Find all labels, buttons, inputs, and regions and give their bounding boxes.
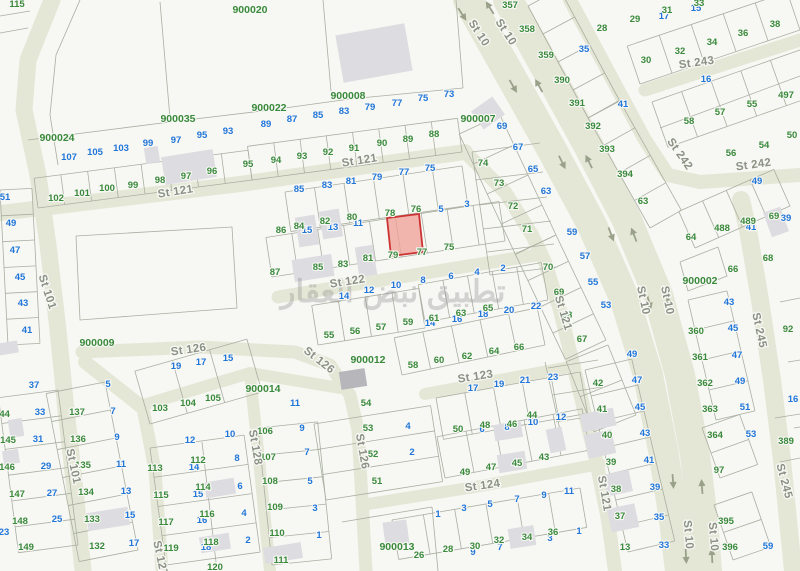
parcel-number[interactable]: 46	[507, 419, 518, 430]
parcel-number[interactable]: 103	[152, 403, 168, 414]
building	[546, 427, 567, 454]
parcel-number[interactable]: 73	[494, 178, 505, 189]
block-id-label: 900024	[39, 132, 74, 144]
parcel-number[interactable]: 395	[718, 516, 735, 527]
parcel-number[interactable]: 26	[414, 550, 425, 561]
parcel-number[interactable]: 12	[185, 435, 196, 446]
parcel-number[interactable]: 77	[399, 167, 410, 178]
parcel-number[interactable]: 71	[522, 224, 533, 235]
parcel-number[interactable]: 68	[763, 253, 774, 264]
parcel-number[interactable]: 3	[464, 199, 469, 210]
parcel-number[interactable]: 97	[714, 465, 725, 476]
parcel-number[interactable]: 35	[654, 512, 665, 523]
parcel-number[interactable]: 47	[732, 350, 743, 361]
parcel-number[interactable]: 67	[577, 334, 588, 345]
parcel-number[interactable]: 28	[443, 544, 454, 555]
parcel-number[interactable]: 132	[89, 541, 105, 552]
parcel-number[interactable]: 35	[579, 44, 590, 55]
parcel-number[interactable]: 55	[747, 99, 758, 110]
parcel-number[interactable]: 83	[322, 180, 333, 191]
parcel-number[interactable]: 12	[364, 285, 375, 296]
parcel-number[interactable]: 104	[180, 398, 197, 409]
parcel-number[interactable]: 83	[338, 259, 349, 270]
parcel-number[interactable]: 42	[593, 378, 604, 389]
parcel-number[interactable]: 45	[512, 458, 523, 469]
parcel-number[interactable]: 72	[508, 201, 519, 212]
parcel-number[interactable]: 105	[87, 147, 104, 158]
parcel-number[interactable]: 41	[22, 325, 33, 336]
parcel-number[interactable]: 28	[597, 23, 608, 34]
parcel-number[interactable]: 36	[548, 527, 559, 538]
parcel-number[interactable]: 73	[444, 89, 455, 100]
parcel-number[interactable]: 394	[617, 169, 634, 180]
parcel-number[interactable]: 62	[462, 351, 473, 362]
parcel-number[interactable]: 39	[781, 213, 792, 224]
parcel-number[interactable]: 1	[435, 509, 441, 520]
lot-line	[780, 298, 800, 302]
parcel-number[interactable]: 114	[195, 482, 211, 493]
parcel-number[interactable]: 38	[611, 484, 622, 495]
parcel-number[interactable]: 30	[641, 55, 652, 66]
parcel-number[interactable]: 50	[787, 130, 798, 141]
parcel-number[interactable]: 85	[294, 184, 305, 195]
lot-line	[342, 507, 432, 522]
parcel-number[interactable]: 118	[203, 537, 218, 548]
parcel-number[interactable]: 389	[778, 436, 794, 447]
street-label: St 10	[681, 520, 695, 550]
block-id-label: 900022	[251, 102, 286, 114]
parcel-number[interactable]: 81	[363, 253, 374, 264]
parcel-number[interactable]: 146	[0, 462, 15, 473]
parcel-number[interactable]: 149	[18, 542, 34, 553]
parcel-number[interactable]: 55	[324, 330, 335, 341]
parcel-number[interactable]: 99	[143, 138, 154, 149]
lot-line	[794, 427, 800, 428]
parcel-number[interactable]: 113	[147, 463, 162, 474]
parcel-number[interactable]: 53	[746, 429, 757, 440]
lot-line	[788, 360, 800, 362]
parcel-number[interactable]: 87	[270, 267, 281, 278]
parcel-number[interactable]: 19	[171, 361, 182, 372]
parcel-number[interactable]: 10	[391, 280, 402, 291]
parcel-number[interactable]: 78	[385, 208, 396, 219]
lot-line	[472, 143, 540, 152]
block-id-label: 900007	[460, 113, 495, 125]
parcel-number[interactable]: 45	[728, 323, 739, 334]
parcel-number[interactable]: 31	[662, 5, 673, 16]
parcel-number[interactable]: 362	[697, 378, 713, 389]
parcel-number[interactable]: 17	[196, 357, 207, 368]
parcel-number[interactable]: 136	[70, 434, 86, 445]
parcel-number[interactable]: 7	[304, 447, 309, 458]
parcel-number[interactable]: 69	[769, 211, 780, 222]
parcel-number[interactable]: 6	[448, 271, 453, 282]
parcel-number[interactable]: 45	[15, 272, 26, 283]
block-id-label: 900012	[350, 354, 385, 366]
parcel-number[interactable]: 41	[644, 455, 655, 466]
parcel-number[interactable]: 85	[313, 110, 324, 121]
parcel-number[interactable]: 59	[403, 317, 414, 328]
parcel-number[interactable]: 2	[409, 447, 414, 458]
parcel-number[interactable]: 54	[759, 140, 770, 151]
parcel-number[interactable]: 95	[197, 130, 208, 141]
parcel-number[interactable]: 7	[514, 494, 519, 505]
parcel-number[interactable]: 112	[190, 455, 205, 466]
parcel-number[interactable]: 75	[425, 163, 436, 174]
parcel-number[interactable]: 11	[564, 486, 575, 497]
parcel-number[interactable]: 8	[234, 453, 239, 464]
parcel-number[interactable]: 108	[262, 476, 278, 487]
parcel-number[interactable]: 49	[735, 376, 746, 387]
parcel-number[interactable]: 75	[418, 93, 429, 104]
parcel-number[interactable]: 364	[707, 430, 724, 441]
parcel-number[interactable]: 357	[502, 0, 518, 11]
block-id-label: 900035	[160, 113, 195, 125]
parcel-number[interactable]: 98	[155, 175, 166, 186]
parcel-number[interactable]: 66	[728, 264, 739, 275]
parcel-number[interactable]: 145	[0, 435, 17, 446]
parcel-number[interactable]: 144	[0, 409, 11, 420]
parcel-number[interactable]: 16	[788, 394, 799, 405]
parcel-number[interactable]: 63	[456, 308, 467, 319]
parcel-number[interactable]: 85	[313, 262, 324, 273]
parcel-number[interactable]: 15	[125, 510, 136, 521]
parcel-number[interactable]: 1	[576, 526, 582, 537]
parcel-number[interactable]: 147	[9, 489, 25, 500]
parcel-number[interactable]: 45	[635, 402, 646, 413]
lot-line	[160, 2, 170, 118]
parcel-number[interactable]: 89	[261, 119, 272, 130]
parcel-number[interactable]: 133	[84, 514, 100, 525]
block-id-label: 900020	[232, 4, 267, 16]
block-id-label: 900014	[245, 383, 280, 395]
parcel-number[interactable]: 97	[171, 135, 182, 146]
parcel-number[interactable]: 92	[323, 147, 334, 158]
parcel-number[interactable]: 66	[514, 342, 525, 353]
parcel-number[interactable]: 43	[539, 452, 550, 463]
parcel-number[interactable]: 65	[483, 303, 494, 314]
parcel-number[interactable]: 20	[504, 305, 515, 316]
parcel-number[interactable]: 5	[487, 499, 493, 510]
parcel-number[interactable]: 79	[388, 250, 399, 261]
parcel-number[interactable]: 23	[548, 372, 559, 383]
parcel-number[interactable]: 77	[392, 98, 403, 109]
parcel-number[interactable]: 116	[199, 509, 214, 520]
parcel-number[interactable]: 102	[48, 193, 64, 204]
parcel-number[interactable]: 51	[0, 192, 11, 203]
parcel-number[interactable]: 63	[638, 196, 649, 207]
parcel-number[interactable]: 101	[74, 188, 91, 199]
road	[85, 362, 143, 408]
parcel-number[interactable]: 111	[274, 555, 290, 566]
parcel-number[interactable]: 3	[461, 503, 466, 514]
parcel-number[interactable]: 92	[783, 324, 794, 335]
parcel-number[interactable]: 47	[486, 462, 497, 473]
parcel-number[interactable]: 361	[692, 352, 709, 363]
parcel-number[interactable]: 23	[0, 527, 9, 538]
parcel-number[interactable]: 44	[527, 410, 538, 421]
parcel-number[interactable]: 5	[307, 476, 313, 487]
parcel-number[interactable]: 96	[207, 166, 218, 177]
parcel-number[interactable]: 64	[686, 232, 697, 243]
parcel-number[interactable]: 17	[129, 538, 140, 549]
parcel-number[interactable]: 488	[714, 223, 730, 234]
parcel-number[interactable]: 31	[33, 434, 44, 445]
parcel-number[interactable]: 57	[580, 251, 591, 262]
parcel-number[interactable]: 4	[241, 508, 247, 519]
parcel-number[interactable]: 58	[684, 116, 695, 127]
parcel-map[interactable]: تطبيق نبض العقار 10710510399979593898785…	[0, 0, 800, 571]
parcel-number[interactable]: 6	[237, 481, 242, 492]
parcel-number[interactable]: 59	[567, 227, 578, 238]
parcel-number[interactable]: 148	[12, 516, 28, 527]
parcel-number[interactable]: 39	[650, 482, 661, 493]
parcel-number[interactable]: 40	[602, 430, 613, 441]
parcel-number[interactable]: 75	[444, 242, 455, 253]
building	[339, 368, 367, 390]
parcel-number[interactable]: 49	[460, 467, 471, 478]
parcel-number[interactable]: 76	[411, 204, 422, 215]
parcel-number[interactable]: 97	[181, 171, 192, 182]
parcel-number[interactable]: 87	[287, 114, 298, 125]
parcel-number[interactable]: 115	[153, 490, 169, 501]
parcel-number[interactable]: 105	[205, 393, 222, 404]
parcel-number[interactable]: 90	[377, 138, 388, 149]
parcel-number[interactable]: 80	[347, 212, 358, 223]
parcel-number[interactable]: 65	[528, 164, 539, 175]
parcel-number[interactable]: 47	[632, 375, 643, 386]
parcel-number[interactable]: 13	[121, 486, 132, 497]
parcel-number[interactable]: 7	[110, 406, 115, 417]
parcel-number[interactable]: 86	[276, 225, 287, 236]
parcel-number[interactable]: 51	[740, 402, 751, 413]
parcel-number[interactable]: 74	[478, 158, 489, 169]
parcel-number[interactable]: 48	[480, 420, 491, 431]
parcel-number[interactable]: 358	[519, 24, 535, 35]
parcel-number[interactable]: 30	[470, 541, 481, 552]
map-canvas[interactable]: تطبيق نبض العقار 10710510399979593898785…	[0, 0, 800, 571]
parcel-number[interactable]: 41	[597, 404, 608, 415]
building	[0, 341, 19, 356]
parcel-number[interactable]: 14	[339, 291, 350, 302]
parcel-number[interactable]: 11	[116, 459, 127, 470]
parcel-number[interactable]: 4	[474, 267, 480, 278]
parcel-number[interactable]: 79	[372, 172, 383, 183]
parcel-number[interactable]: 15	[223, 353, 234, 364]
parcel-number[interactable]: 43	[640, 428, 651, 439]
block-id-label: 900008	[330, 90, 365, 102]
road	[24, 0, 83, 571]
parcel-number[interactable]: 11	[290, 398, 301, 409]
parcel-number[interactable]: 49	[6, 218, 17, 229]
parcel-number[interactable]: 49	[627, 349, 638, 360]
parcel-number[interactable]: 99	[128, 180, 139, 191]
parcel-number[interactable]: 29	[630, 14, 641, 25]
parcel-number[interactable]: 93	[297, 151, 308, 162]
parcel-number[interactable]: 43	[724, 297, 735, 308]
parcel-number[interactable]: 67	[513, 142, 524, 153]
parcel-number[interactable]: 5	[105, 379, 111, 390]
parcel-number[interactable]: 32	[494, 535, 505, 546]
parcel-number[interactable]: 54	[361, 398, 372, 409]
parcel-number[interactable]: 115	[9, 0, 25, 10]
parcel-number[interactable]: 91	[349, 143, 360, 154]
parcel-number[interactable]: 393	[599, 144, 615, 155]
parcel-number[interactable]: 1	[316, 530, 322, 541]
parcel-number[interactable]: 137	[69, 407, 85, 418]
parcel-number[interactable]: 9	[114, 432, 119, 443]
street-label: St 10	[706, 522, 720, 552]
parcel-number[interactable]: 81	[346, 176, 357, 187]
parcel-number[interactable]: 33	[35, 407, 46, 418]
parcel-number[interactable]: 82	[320, 216, 331, 227]
parcel-number[interactable]: 70	[543, 262, 554, 273]
parcel-number[interactable]: 134	[78, 487, 95, 498]
parcel-number[interactable]: 57	[376, 322, 387, 333]
parcel-number[interactable]: 2	[245, 535, 250, 546]
street-label: St 124	[464, 478, 501, 495]
building	[335, 23, 412, 82]
parcel-number[interactable]: 9	[541, 490, 546, 501]
parcel-number[interactable]: 60	[434, 355, 445, 366]
parcel-number[interactable]: 79	[365, 102, 376, 113]
parcel-number[interactable]: 33	[659, 540, 670, 551]
parcel-number[interactable]: 4	[405, 421, 411, 432]
lot-line	[28, 88, 463, 140]
parcel-number[interactable]: 363	[702, 404, 718, 415]
parcel-number[interactable]: 489	[740, 216, 756, 227]
parcel-number[interactable]: 13	[620, 542, 631, 553]
parcel-number[interactable]: 94	[271, 155, 282, 166]
parcel-number[interactable]: 359	[538, 50, 554, 61]
block-id-label: 900002	[682, 275, 717, 287]
lot-line	[76, 227, 237, 320]
parcel-number[interactable]: 57	[715, 107, 726, 118]
parcel-number[interactable]: 88	[429, 129, 440, 140]
parcel-number[interactable]: 17	[468, 383, 479, 394]
parcel-number[interactable]: 5	[438, 204, 444, 215]
parcel-number[interactable]: 21	[520, 375, 531, 386]
parcel-number[interactable]: 100	[99, 183, 115, 194]
parcel-number[interactable]: 360	[688, 326, 704, 337]
parcel-number[interactable]: 39	[606, 457, 617, 468]
parcel-number[interactable]: 56	[726, 148, 737, 159]
parcel-number[interactable]: 84	[294, 221, 305, 232]
parcel-number[interactable]: 391	[569, 98, 586, 109]
parcel-number[interactable]: 77	[417, 247, 428, 258]
parcel-number[interactable]: 59	[763, 541, 774, 552]
parcel-number[interactable]: 2	[500, 263, 505, 274]
parcel-number[interactable]: 50	[453, 424, 464, 435]
parcel-number[interactable]: 16	[701, 74, 712, 85]
parcel-number[interactable]: 8	[420, 275, 425, 286]
parcel-number[interactable]: 22	[531, 301, 542, 312]
lot-line	[323, 0, 331, 91]
parcel-number[interactable]: 33	[694, 0, 705, 9]
parcel-number[interactable]: 27	[47, 488, 58, 499]
parcel-number[interactable]: 37	[615, 511, 626, 522]
parcel-number[interactable]: 396	[722, 542, 738, 553]
parcel-number[interactable]: 47	[10, 245, 21, 256]
block-id-label: 900009	[79, 337, 114, 349]
parcel-number[interactable]: 110	[269, 528, 284, 539]
parcel-number[interactable]: 95	[243, 159, 254, 170]
block-id-label: 900013	[379, 541, 414, 553]
parcel-number[interactable]: 34	[707, 37, 718, 48]
road	[140, 373, 340, 406]
parcel-number[interactable]: 55	[588, 277, 599, 288]
parcel-number[interactable]: 117	[158, 517, 173, 528]
parcel-number[interactable]: 63	[541, 186, 552, 197]
parcel-number[interactable]: 93	[223, 126, 234, 137]
parcel-number[interactable]: 9	[299, 423, 304, 434]
parcel-number[interactable]: 37	[29, 380, 40, 391]
parcel-number[interactable]: 61	[429, 313, 440, 324]
lot-line	[0, 28, 28, 33]
parcel-number[interactable]: 392	[585, 121, 601, 132]
parcel-number[interactable]: 51	[372, 476, 383, 487]
parcel-number[interactable]: 107	[61, 152, 77, 163]
parcel-number[interactable]: 36	[738, 28, 749, 39]
parcel-number[interactable]: 10	[225, 429, 236, 440]
parcel-number[interactable]: 89	[403, 134, 414, 145]
parcel-number[interactable]: 64	[489, 346, 500, 357]
parcel-number[interactable]: 53	[601, 300, 612, 311]
parcel-number[interactable]: 497	[778, 90, 794, 101]
parcel-number[interactable]: 69	[497, 121, 508, 132]
parcel-number[interactable]: 103	[113, 143, 129, 154]
parcel-number[interactable]: 49	[752, 176, 763, 187]
parcel-number[interactable]: 390	[554, 75, 570, 86]
parcel-number[interactable]: 120	[207, 562, 223, 571]
parcel-number[interactable]: 25	[52, 514, 63, 525]
parcel-number[interactable]: 41	[618, 99, 629, 110]
parcel-number[interactable]: 32	[675, 46, 686, 57]
parcel-number[interactable]: 34	[522, 532, 533, 543]
parcel-number[interactable]: 3	[312, 503, 317, 514]
road	[250, 375, 270, 571]
parcel-number[interactable]: 83	[339, 106, 350, 117]
parcel-number[interactable]: 58	[408, 360, 419, 371]
parcel-number[interactable]: 109	[267, 502, 283, 513]
parcel-number[interactable]: 43	[18, 298, 29, 309]
parcel-number[interactable]: 56	[350, 326, 361, 337]
parcel-number[interactable]: 12	[556, 412, 567, 423]
parcel-number[interactable]: 29	[41, 461, 52, 472]
lot-line	[0, 11, 30, 16]
parcel-number[interactable]: 38	[770, 19, 781, 30]
road	[645, 40, 800, 90]
parcel-number[interactable]: 19	[494, 379, 505, 390]
